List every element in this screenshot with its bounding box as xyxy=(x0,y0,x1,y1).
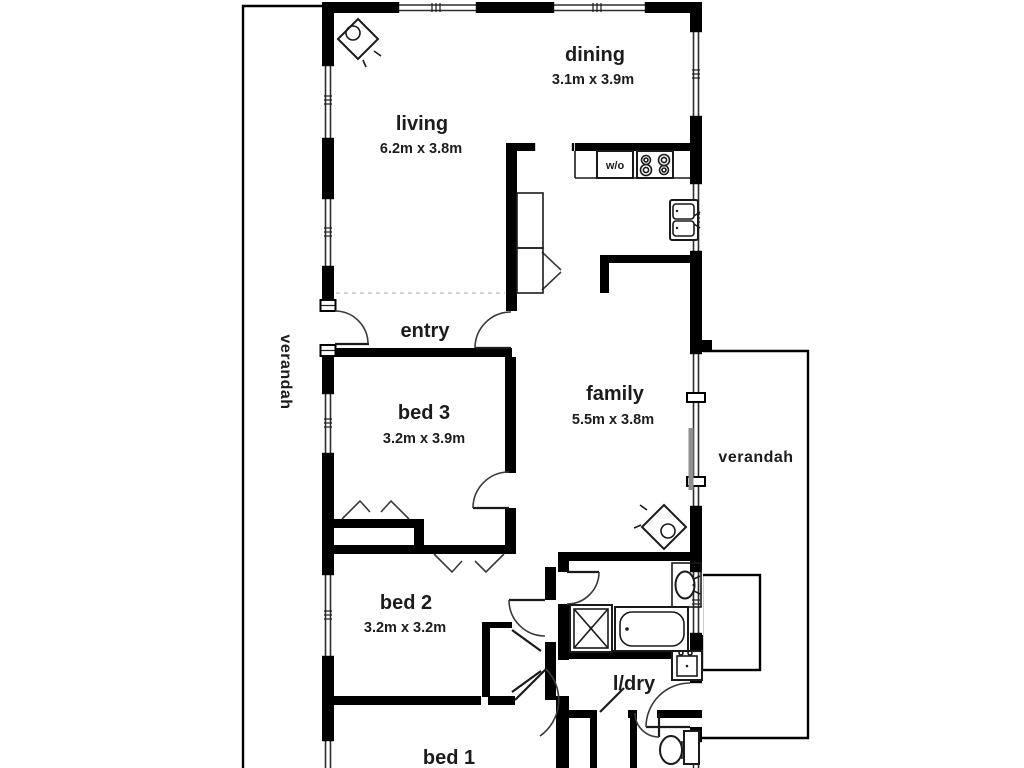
window-left-2 xyxy=(321,197,335,268)
sliding-door xyxy=(687,352,705,508)
slider-panel xyxy=(689,428,694,490)
bathtub-icon xyxy=(615,607,688,651)
window-left-1 xyxy=(321,64,335,140)
pantry-bifold xyxy=(542,252,561,290)
room-label-laundry: l/dry xyxy=(613,673,656,695)
window-right-1 xyxy=(689,30,703,118)
verandah-step xyxy=(702,575,760,670)
shower-icon xyxy=(570,605,612,652)
laundry-trough-icon xyxy=(672,651,702,680)
room-label-family: family xyxy=(586,383,645,405)
room-label-living: living xyxy=(396,113,448,135)
room-label-entry: entry xyxy=(401,320,451,342)
room-dims-family: 5.5m x 3.8m xyxy=(572,412,654,428)
front-door xyxy=(321,300,370,356)
pantry-cupboard xyxy=(517,193,543,293)
wall-oven-label: w/o xyxy=(605,160,625,172)
sink-icon xyxy=(670,200,700,240)
room-dims-bed3: 3.2m x 3.9m xyxy=(383,431,465,447)
living-dining-opening xyxy=(534,143,573,151)
window-left-4 xyxy=(321,573,335,658)
bathroom-door xyxy=(567,572,599,604)
entry-family-door xyxy=(475,312,511,348)
verandah-right-outline xyxy=(690,340,808,738)
floor-plan: w/o xyxy=(0,0,1024,768)
room-label-verandah-right: verandah xyxy=(718,449,793,466)
wood-heater-icon xyxy=(634,505,686,549)
room-label-bed2: bed 2 xyxy=(380,592,432,614)
room-label-dining: dining xyxy=(565,44,625,66)
wood-heater-icon xyxy=(338,19,381,67)
window-left-3 xyxy=(321,392,335,455)
bed3-door xyxy=(473,472,509,508)
window-top-1 xyxy=(397,1,478,14)
window-left-5 xyxy=(321,739,335,768)
wall-oven: w/o xyxy=(597,151,633,178)
room-dims-dining: 3.1m x 3.9m xyxy=(552,72,634,88)
linen-doors xyxy=(512,630,541,692)
floor-plan-canvas: w/o xyxy=(0,0,1024,768)
room-dims-living: 6.2m x 3.8m xyxy=(380,141,462,157)
room-label-bed1: bed 1 xyxy=(423,747,475,768)
toilet-icon xyxy=(660,731,699,764)
window-top-2 xyxy=(552,1,647,14)
stove-icon xyxy=(637,151,673,178)
bed2-robe-bifold xyxy=(434,554,504,572)
room-dims-bed2: 3.2m x 3.2m xyxy=(364,620,446,636)
room-label-bed3: bed 3 xyxy=(398,402,450,424)
room-label-verandah-left: verandah xyxy=(277,334,294,409)
bed3-robe-bifold xyxy=(342,501,409,519)
